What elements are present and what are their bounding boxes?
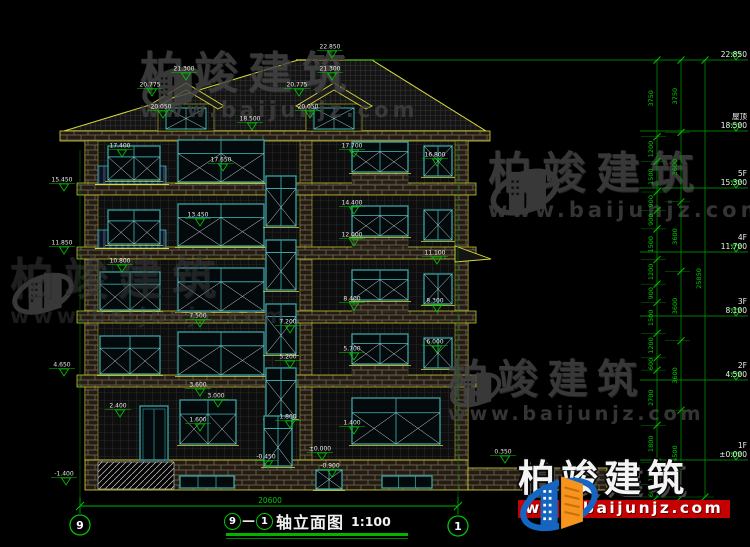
svg-text:16.800: 16.800 bbox=[425, 152, 446, 159]
svg-text:12.000: 12.000 bbox=[342, 232, 363, 239]
elevation-marker: 22.850 bbox=[317, 44, 343, 59]
title-scale: 1:100 bbox=[351, 514, 391, 529]
svg-text:-1.400: -1.400 bbox=[54, 471, 74, 478]
svg-text:3.000: 3.000 bbox=[207, 393, 224, 400]
level-value: 22.850 bbox=[721, 50, 747, 59]
elevation-marker: 21.300 bbox=[317, 66, 343, 81]
elevation-marker: 17.400 bbox=[107, 143, 133, 158]
level-value: 4.500 bbox=[726, 370, 748, 379]
svg-text:4.650: 4.650 bbox=[53, 362, 70, 369]
axis-bubble-right: 1 bbox=[448, 516, 468, 536]
svg-text:17.400: 17.400 bbox=[110, 143, 131, 150]
elevation-marker: 11.850 bbox=[49, 240, 75, 255]
elevation-marker: 20.050 bbox=[148, 104, 174, 119]
svg-text:20.050: 20.050 bbox=[151, 104, 172, 111]
elevation-marker: 18.500 bbox=[237, 116, 263, 131]
title-dash: — bbox=[242, 514, 255, 529]
cad-canvas: 柏竣建筑 www.baijunjz.com 柏竣建筑 www.baijunjz.… bbox=[0, 0, 750, 547]
svg-text:13.450: 13.450 bbox=[188, 212, 209, 219]
level-name: 1F bbox=[738, 441, 747, 450]
elevation-markers: 22.85021.30020.77520.05021.30020.77520.0… bbox=[49, 44, 516, 486]
dimension-chains: 3750120015009009001500120090015001200600… bbox=[641, 57, 714, 501]
dim-value: 1500 bbox=[647, 168, 655, 185]
elevation-marker: 20.775 bbox=[137, 82, 163, 97]
elevation-marker: 6.000 bbox=[422, 339, 448, 354]
title-underline-thin bbox=[226, 538, 408, 539]
dim-value: 1500 bbox=[647, 236, 655, 253]
brand-logo-icon bbox=[518, 460, 600, 542]
svg-text:18.500: 18.500 bbox=[240, 116, 261, 123]
dim-value: 1500 bbox=[647, 310, 655, 327]
elevation-marker: 5.200 bbox=[275, 354, 301, 369]
svg-text:3.600: 3.600 bbox=[189, 382, 206, 389]
dim-value: 1200 bbox=[647, 264, 655, 281]
svg-text:22.850: 22.850 bbox=[320, 44, 341, 51]
svg-text:20.775: 20.775 bbox=[287, 82, 308, 89]
elevation-marker: 13.450 bbox=[185, 212, 211, 227]
dim-value: 900 bbox=[647, 213, 655, 225]
svg-text:1.600: 1.600 bbox=[189, 417, 206, 424]
level-name: 5F bbox=[738, 169, 747, 178]
elevation-marker: 0.350 bbox=[490, 449, 516, 464]
elevation-marker: -0.900 bbox=[317, 463, 343, 478]
svg-text:-0.450: -0.450 bbox=[256, 454, 276, 461]
svg-text:7.500: 7.500 bbox=[189, 313, 206, 320]
level-name: 4F bbox=[738, 233, 747, 242]
level-value: 18.500 bbox=[721, 121, 747, 130]
dim-value: 1200 bbox=[647, 337, 655, 354]
level-value: 15.300 bbox=[721, 178, 747, 187]
elevation-marker: 21.300 bbox=[171, 66, 197, 81]
svg-text:-0.900: -0.900 bbox=[320, 463, 340, 470]
elevation-marker: 4.650 bbox=[49, 362, 75, 377]
elevation-marker: -1.400 bbox=[51, 471, 77, 486]
svg-text:1.400: 1.400 bbox=[343, 420, 360, 427]
svg-text:7.200: 7.200 bbox=[279, 319, 296, 326]
elevation-marker: 1.800 bbox=[275, 414, 301, 429]
svg-text:±0.000: ±0.000 bbox=[309, 446, 331, 453]
axis-bubble-left: 9 bbox=[70, 515, 90, 535]
level-name: 屋顶 bbox=[732, 112, 747, 121]
watermark-color: 柏竣建筑 www.baijunjz.com bbox=[518, 460, 730, 518]
dim-value: 3600 bbox=[671, 159, 679, 176]
elevation-marker: 16.800 bbox=[422, 152, 448, 167]
elevation-marker: 5.700 bbox=[339, 346, 365, 361]
drawing-title: 9 — 1 轴立面图 1:100 bbox=[224, 509, 391, 533]
svg-text:8.400: 8.400 bbox=[343, 296, 360, 303]
dim-value: 1200 bbox=[647, 141, 655, 158]
floor-level-lines: 22.85018.500屋顶15.3005F11.7004F8.1003F4.5… bbox=[345, 50, 748, 460]
level-value: 8.100 bbox=[726, 306, 748, 315]
svg-text:2.400: 2.400 bbox=[109, 403, 126, 410]
svg-text:17.650: 17.650 bbox=[211, 157, 232, 164]
elevation-marker: 1.600 bbox=[185, 417, 211, 432]
dim-value: 1800 bbox=[647, 436, 655, 453]
axis-number: 1 bbox=[454, 520, 462, 533]
dim-value: 3750 bbox=[647, 90, 655, 107]
svg-text:14.400: 14.400 bbox=[342, 200, 363, 207]
elevation-marker: ±0.000 bbox=[307, 446, 333, 461]
axis-number: 9 bbox=[76, 519, 84, 532]
dim-value: 2700 bbox=[647, 389, 655, 406]
level-name: 2F bbox=[738, 361, 747, 370]
svg-text:11.850: 11.850 bbox=[52, 240, 73, 247]
svg-text:6.000: 6.000 bbox=[426, 339, 443, 346]
elevation-marker: 8.300 bbox=[422, 298, 448, 313]
elevation-marker: 20.050 bbox=[295, 104, 321, 119]
svg-text:10.800: 10.800 bbox=[110, 258, 131, 265]
level-name: 3F bbox=[738, 297, 747, 306]
total-width-dim: 20600 bbox=[258, 496, 282, 505]
svg-text:17.700: 17.700 bbox=[342, 143, 363, 150]
dim-value: 3600 bbox=[671, 228, 679, 245]
level-value: ±0.000 bbox=[719, 450, 747, 459]
elevation-marker: 17.700 bbox=[339, 143, 365, 158]
level-value: 11.700 bbox=[721, 242, 747, 251]
elevation-marker: 14.400 bbox=[339, 200, 365, 215]
svg-text:8.300: 8.300 bbox=[426, 298, 443, 305]
dim-value: 3600 bbox=[671, 298, 679, 315]
svg-text:1.800: 1.800 bbox=[279, 414, 296, 421]
svg-text:5.700: 5.700 bbox=[343, 346, 360, 353]
elevation-marker: 12.000 bbox=[339, 232, 365, 247]
dim-value: 25850 bbox=[695, 268, 703, 289]
svg-text:5.200: 5.200 bbox=[279, 354, 296, 361]
dim-value: 600 bbox=[647, 358, 655, 370]
title-axis-start: 9 bbox=[224, 513, 241, 530]
svg-text:21.300: 21.300 bbox=[320, 66, 341, 73]
elevation-marker: -0.450 bbox=[253, 454, 279, 469]
dim-value: 900 bbox=[647, 195, 655, 207]
dim-value: 900 bbox=[647, 287, 655, 299]
svg-text:11.100: 11.100 bbox=[425, 250, 446, 257]
elevation-marker: 10.800 bbox=[107, 258, 133, 273]
elevation-marker: 15.450 bbox=[49, 177, 75, 192]
title-axis-end: 1 bbox=[256, 513, 273, 530]
elevation-marker: 7.500 bbox=[185, 313, 211, 328]
svg-text:20.050: 20.050 bbox=[298, 104, 319, 111]
svg-text:21.300: 21.300 bbox=[174, 66, 195, 73]
dim-value: 3600 bbox=[671, 367, 679, 384]
elevation-marker: 3.000 bbox=[203, 393, 229, 408]
svg-text:20.775: 20.775 bbox=[140, 82, 161, 89]
elevation-marker: 7.200 bbox=[275, 319, 301, 334]
title-underline bbox=[226, 533, 408, 536]
elevation-marker: 2.400 bbox=[105, 403, 131, 418]
elevation-marker: 17.650 bbox=[208, 157, 234, 172]
elevation-marker: 20.775 bbox=[284, 82, 310, 97]
elevation-marker: 11.100 bbox=[422, 250, 448, 265]
svg-text:0.350: 0.350 bbox=[494, 449, 511, 456]
elevation-marker: 8.400 bbox=[339, 296, 365, 311]
title-text: 轴立面图 bbox=[276, 509, 344, 533]
elevation-marker: 1.400 bbox=[339, 420, 365, 435]
dim-value: 3750 bbox=[671, 88, 679, 105]
svg-text:15.450: 15.450 bbox=[52, 177, 73, 184]
